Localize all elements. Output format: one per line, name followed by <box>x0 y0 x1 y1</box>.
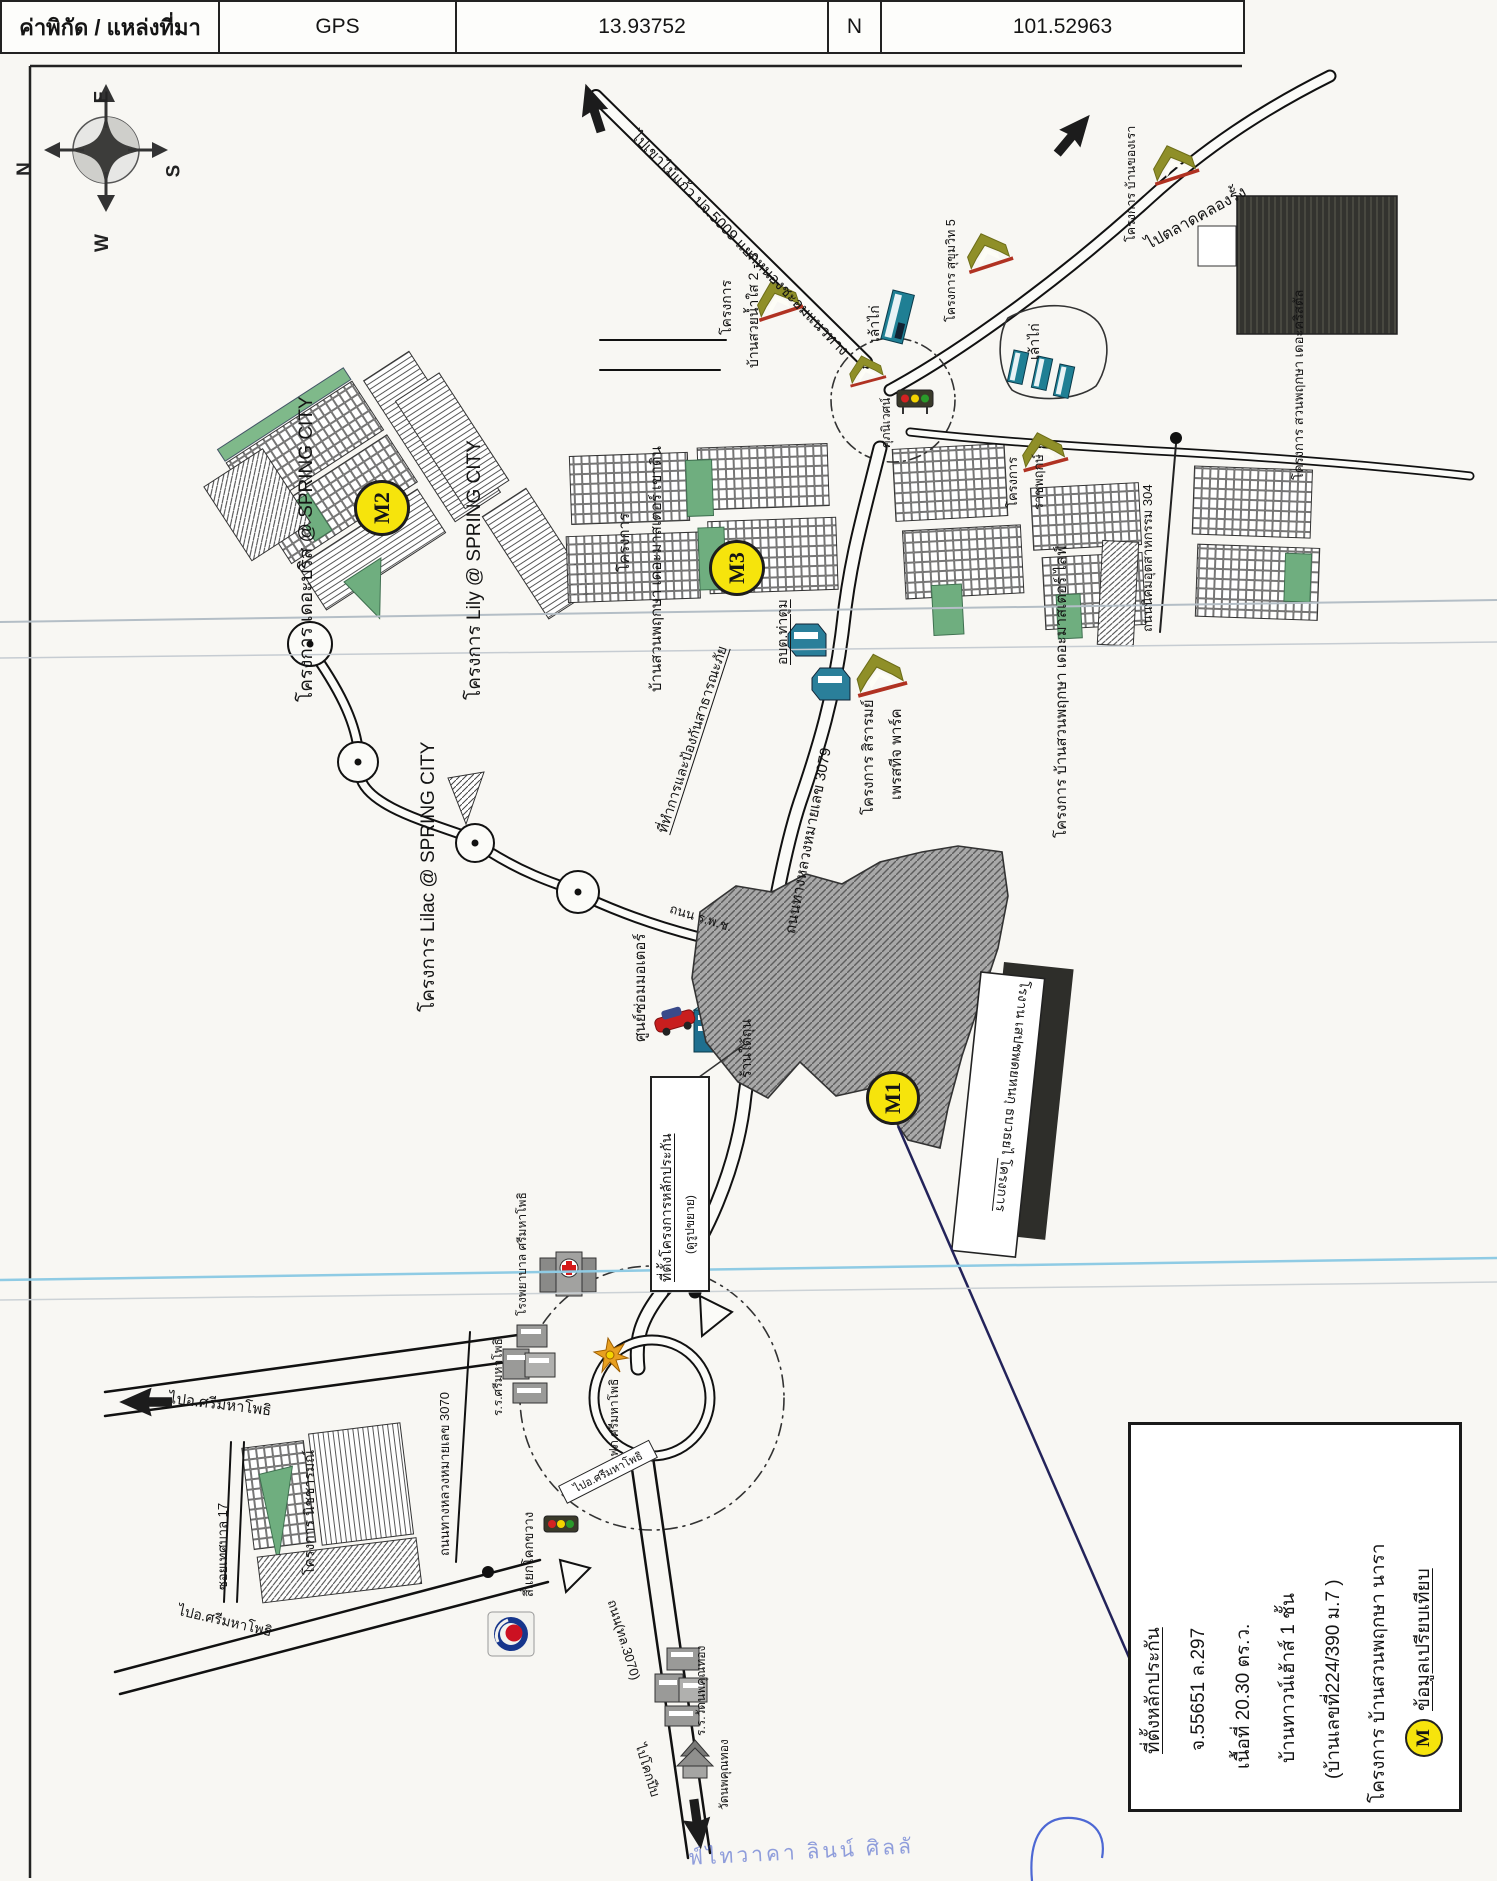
house-icon-sukhumvit5 <box>959 227 1013 273</box>
project-label-breeze: โครงการ เดอะบริส @ SPRING CITY <box>296 396 318 702</box>
project-label-crystal: โครงการ สวนพฤกษา เดอะคริสตัล <box>1292 290 1307 480</box>
project-label-sukhumvit5: โครงการ สุขุมวิท 5 <box>944 219 958 322</box>
compass-east-label: E <box>91 91 113 104</box>
project-label-baansuay-2: บ้านสวยน้ำใส 2 - 3 <box>745 252 761 368</box>
chicken-coop-icon-1 <box>881 290 914 344</box>
header-title: ค่าพิกัด / แหล่งที่มา <box>2 2 220 52</box>
marker-m3: M3 <box>709 540 765 596</box>
project-label-lily: โครงการ Lily @ SPRING CITY <box>464 440 486 700</box>
project-label-baankhongrao: โครงการ บ้านของเรา <box>1124 126 1138 242</box>
label-school-wat: ร.ร.วัดนพคุณทอง <box>695 1646 709 1736</box>
label-supaniwet: ศุภนิเวศน์ <box>880 398 894 448</box>
label-khokkwang: สี่แยกโคกขวาง <box>522 1512 537 1597</box>
traffic-light-icon-bottom <box>544 1516 578 1532</box>
header-latitude: 13.93752 <box>457 2 829 52</box>
coordinate-header: ค่าพิกัด / แหล่งที่มา GPS 13.93752 N 101… <box>0 0 1245 54</box>
project-label-baansuay-1: โครงการ <box>718 280 734 335</box>
chicken-coop-icon-2 <box>1000 306 1107 399</box>
site-annotation-line1: ที่ตั้งโครงการหลักประกัน <box>658 1133 674 1282</box>
factory-label-project: โครงการ <box>993 1158 1013 1212</box>
header-longitude: 101.52963 <box>882 2 1245 52</box>
label-motor-shop: ศูนย์ซ่อมมอเตอร์ <box>632 934 649 1042</box>
marker-m2-text: M2 <box>369 492 395 524</box>
legend-line-address: (บ้านเลขที่224/390 ม.7 ) <box>1311 1425 1356 1809</box>
marker-m1-text: M1 <box>880 1082 906 1114</box>
project-label-sirarom-2: เพรสทีจ พาร์ค <box>888 709 905 800</box>
project-label-khaodin-1: โครงการ <box>616 513 633 572</box>
header-hemisphere: N <box>829 2 882 52</box>
marker-m3-text: M3 <box>724 552 750 584</box>
label-shop-taithun: ร้านใต้ถุน <box>738 1019 754 1078</box>
site-annotation-line2: (ดูรูปขยาย) <box>684 1195 698 1254</box>
estate-khaodin-m3 <box>563 443 838 602</box>
project-label-nitcharom: โครงการ นิชชารมณ์ <box>301 1450 317 1575</box>
label-wat-noppakhun: วัดนพคุณทอง <box>718 1739 732 1810</box>
legend-marker-m: M <box>1405 1719 1443 1757</box>
road-label-304: ถนนนิคมอุตสาหกรรม 304 <box>1141 484 1156 632</box>
road-label-3070: ถนนทางหลวงหมายเลข 3070 <box>438 1392 453 1556</box>
label-obt-thatum: อบต.ท่าตูม <box>774 599 790 665</box>
header-gps-label: GPS <box>220 2 457 52</box>
project-label-khaodin-2: บ้านสวนพฤกษา เดอะมาสเตอร์ เขาดิน <box>648 446 665 692</box>
label-pea-sri: กฟภ.ศรีมหาโพธิ <box>608 1379 622 1464</box>
project-label-ratchaphruek-2: ราชพฤกษ์ <box>1032 454 1047 510</box>
legend-line-deed: จ.55651 ล.297 <box>1176 1425 1221 1809</box>
hatch-wedge <box>448 772 484 824</box>
house-icon-sirarom <box>849 648 907 696</box>
label-chicken-coop-1: เล้าไก่ <box>866 305 882 342</box>
ptt-logo-icon <box>488 1612 534 1656</box>
legend-compare-text: ข้อมูลเปรียบเทียบ <box>1413 1568 1434 1711</box>
project-label-ratchaphruek-1: โครงการ <box>1006 457 1021 508</box>
compass-north-label: N <box>14 162 36 176</box>
car-icon <box>652 1003 697 1038</box>
traffic-light-icon-top <box>897 390 933 414</box>
hospital-icon <box>540 1252 596 1296</box>
label-school-sri: ร.ร.ศรีมหาโพธิ <box>492 1338 506 1416</box>
project-label-sirarom-1: โครงการ สิรารมย์ <box>860 699 877 815</box>
marker-m1: M1 <box>866 1071 920 1125</box>
legend-line-compare: Mข้อมูลเปรียบเทียบ <box>1401 1425 1446 1809</box>
project-label-lilac: โครงการ Lilac @ SPRING CITY <box>418 742 440 1012</box>
project-label-masterlife: โครงการ บ้านสวนพฤกษา เดอะมาสเตอร์ ไลฟ์ <box>1053 545 1070 838</box>
legend-box: ที่ตั้งหลักประกัน จ.55651 ล.297 เนื้อที่… <box>1128 1422 1462 1812</box>
pen-mark <box>1031 1818 1102 1881</box>
arrow-khlongrang <box>1047 106 1101 163</box>
label-hospital-sri: โรงพยาบาล ศรีมหาโพธิ <box>516 1192 530 1316</box>
legend-content: ที่ตั้งหลักประกัน จ.55651 ล.297 เนื้อที่… <box>1131 1425 1459 1809</box>
estate-right-edge <box>1189 466 1322 620</box>
house-icon-baankhongrao <box>1145 139 1199 185</box>
compass-west-label: W <box>92 234 114 252</box>
compass-south-label: S <box>163 165 185 178</box>
label-chicken-coop-2: เล้าไก่ <box>1026 323 1042 360</box>
site-annotation-box: ที่ตั้งโครงการหลักประกัน (ดูรูปขยาย) <box>650 1076 710 1292</box>
temple-icon <box>677 1740 713 1778</box>
legend-line-area: เนื้อที่ 20.30 ตร.ว. <box>1221 1425 1266 1809</box>
road-label-soi17: ซอยเทศบาล 17 <box>216 1503 231 1590</box>
legend-line-housetype: บ้านทาวน์เฮ้าส์ 1 ชั้น <box>1266 1425 1311 1809</box>
map-document: ค่าพิกัด / แหล่งที่มา GPS 13.93752 N 101… <box>0 0 1497 1881</box>
estate-nitcharom <box>241 1423 422 1604</box>
legend-line-project: โครงการ บ้านสวนพฤกษา นารา <box>1356 1425 1401 1809</box>
marker-m2: M2 <box>354 480 410 536</box>
legend-line-title: ที่ตั้งหลักประกัน <box>1131 1425 1176 1809</box>
